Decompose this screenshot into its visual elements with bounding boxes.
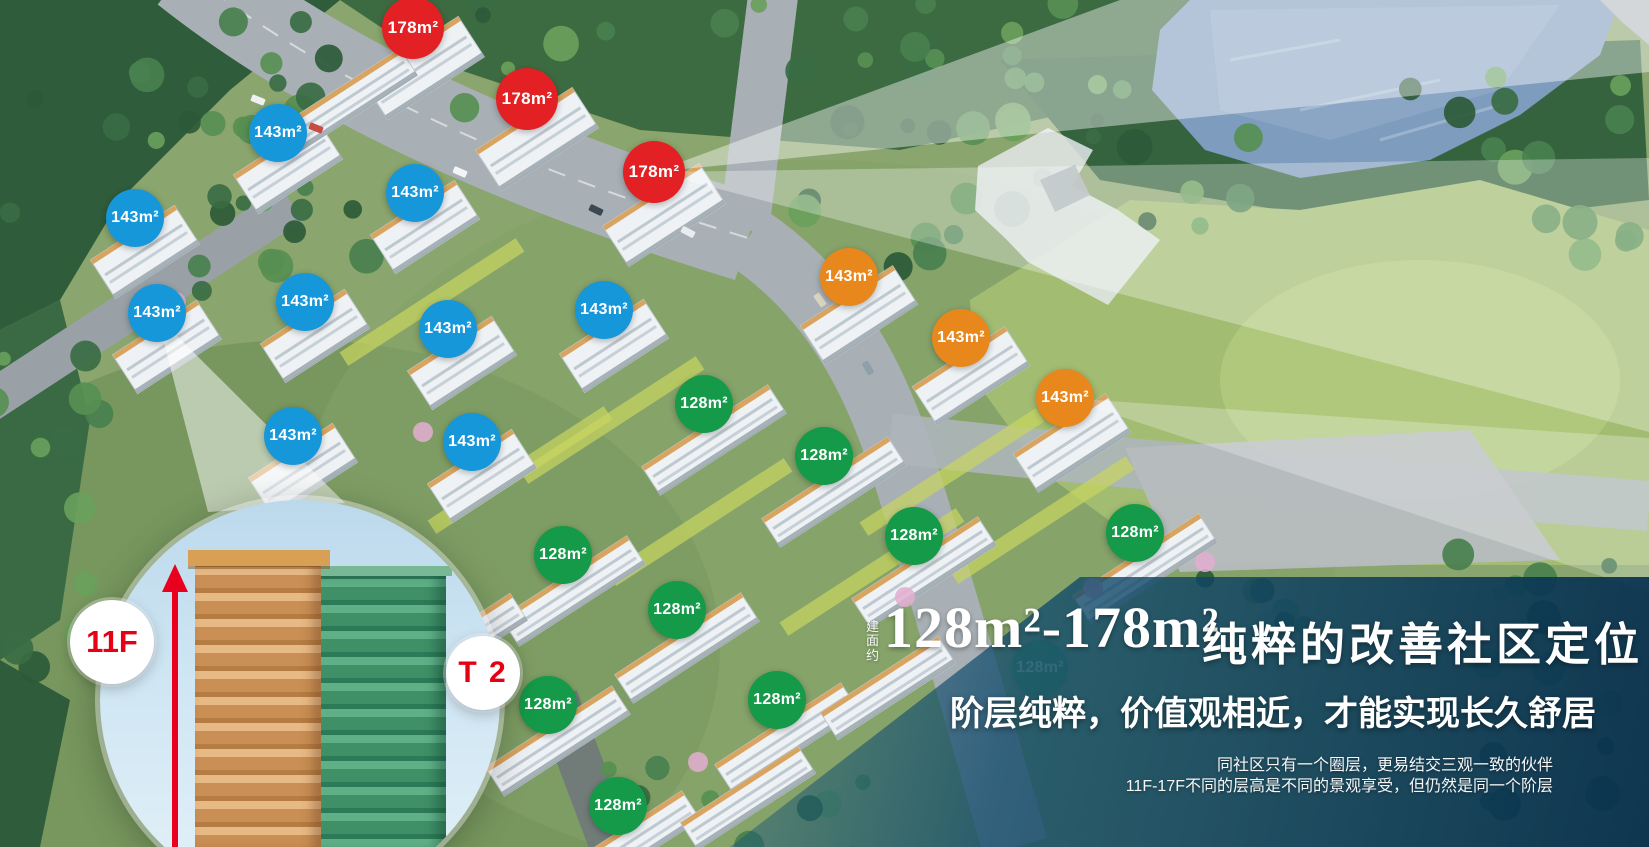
- headline-prefix: 建面约: [866, 620, 881, 663]
- area-badge: 178m²: [496, 68, 558, 130]
- subheadline: 阶层纯粹，价值观相近，才能实现长久舒居: [950, 686, 1596, 735]
- area-badge: 143m²: [276, 273, 334, 331]
- floor-count-label: 11F: [86, 624, 138, 660]
- footnotes: 同社区只有一个圈层，更易结交三观一致的伙伴 11F-17F不同的层高是不同的景观…: [1126, 755, 1553, 797]
- footnote-line: 11F-17F不同的层高是不同的景观享受，但仍然是同一个阶层: [1126, 776, 1553, 797]
- area-badge: 143m²: [1036, 369, 1094, 427]
- inset-building: [100, 500, 500, 847]
- floor-count-badge: 11F: [70, 600, 154, 684]
- real-estate-aerial-poster: 178m²178m²178m²143m²143m²143m²143m²143m²…: [0, 0, 1649, 847]
- footnote-line: 同社区只有一个圈层，更易结交三观一致的伙伴: [1126, 755, 1553, 776]
- area-badge: 143m²: [443, 413, 501, 471]
- area-badge: 178m²: [623, 141, 685, 203]
- area-badge: 128m²: [589, 777, 647, 835]
- headline-area-range: 128m²-178m²: [884, 598, 1220, 659]
- tower-label: T 2: [458, 656, 507, 690]
- area-badge: 143m²: [128, 284, 186, 342]
- area-badge: 128m²: [885, 507, 943, 565]
- area-badge: 128m²: [519, 676, 577, 734]
- building-elevation-inset: [100, 500, 500, 847]
- area-badge: 128m²: [534, 526, 592, 584]
- area-badge: 128m²: [1106, 504, 1164, 562]
- headline-title: 纯粹的改善社区定位: [1202, 608, 1643, 673]
- area-badge: 128m²: [748, 671, 806, 729]
- area-badge: 143m²: [386, 164, 444, 222]
- area-badge: 143m²: [106, 189, 164, 247]
- area-badge: 143m²: [249, 104, 307, 162]
- area-badge: 143m²: [575, 281, 633, 339]
- area-badge: 143m²: [820, 248, 878, 306]
- area-badge: 128m²: [795, 427, 853, 485]
- area-badge: 143m²: [264, 407, 322, 465]
- area-badge: 128m²: [648, 581, 706, 639]
- area-badge: 128m²: [675, 375, 733, 433]
- area-badge: 178m²: [382, 0, 444, 59]
- area-badge: 143m²: [419, 300, 477, 358]
- height-arrow: [100, 500, 500, 847]
- area-badge: 143m²: [932, 309, 990, 367]
- tower-badge: T 2: [446, 636, 520, 710]
